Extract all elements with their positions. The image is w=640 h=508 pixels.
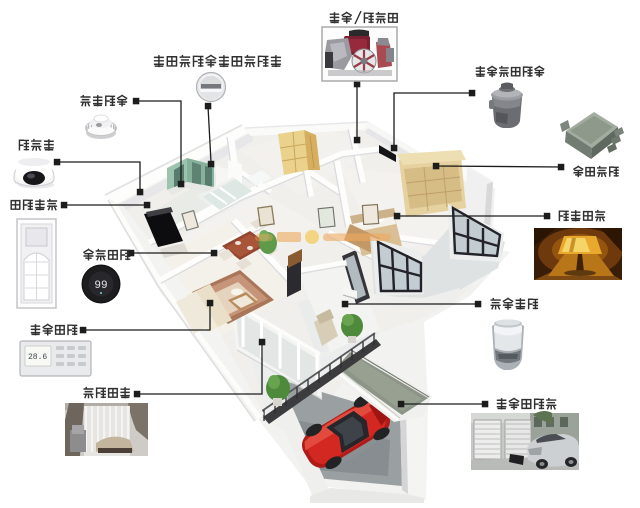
svg-text:99: 99	[94, 280, 107, 292]
svg-text:28.6: 28.6	[28, 353, 47, 362]
